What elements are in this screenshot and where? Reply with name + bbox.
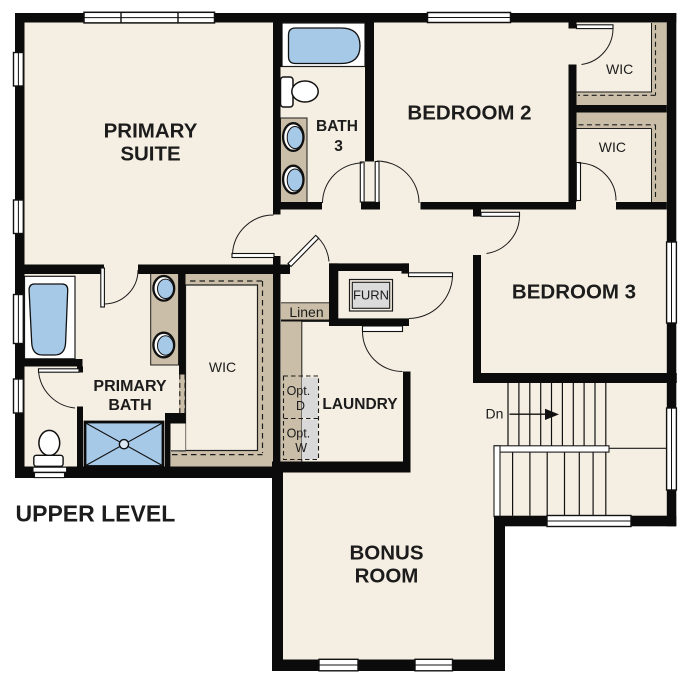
svg-text:Linen: Linen [289, 304, 323, 320]
svg-text:D: D [296, 399, 305, 413]
svg-text:WIC: WIC [209, 359, 236, 375]
svg-text:WIC: WIC [599, 139, 626, 155]
svg-text:WIC: WIC [606, 61, 633, 77]
svg-text:LAUNDRY: LAUNDRY [322, 396, 398, 413]
svg-text:FURN: FURN [353, 287, 389, 302]
svg-text:PRIMARY: PRIMARY [104, 119, 198, 142]
svg-text:Opt.: Opt. [287, 427, 311, 441]
svg-text:BEDROOM 3: BEDROOM 3 [512, 280, 636, 303]
svg-text:3: 3 [334, 138, 343, 155]
svg-text:BONUS: BONUS [349, 541, 423, 564]
svg-text:UPPER LEVEL: UPPER LEVEL [16, 501, 176, 527]
svg-text:SUITE: SUITE [120, 142, 180, 165]
svg-text:BATH: BATH [108, 397, 151, 414]
svg-text:BATH: BATH [316, 118, 358, 135]
svg-text:ROOM: ROOM [355, 564, 419, 587]
svg-text:W: W [295, 441, 307, 455]
svg-text:Dn: Dn [486, 406, 504, 422]
svg-text:Opt.: Opt. [287, 384, 311, 398]
svg-text:PRIMARY: PRIMARY [93, 378, 167, 395]
svg-text:BEDROOM 2: BEDROOM 2 [407, 101, 531, 124]
